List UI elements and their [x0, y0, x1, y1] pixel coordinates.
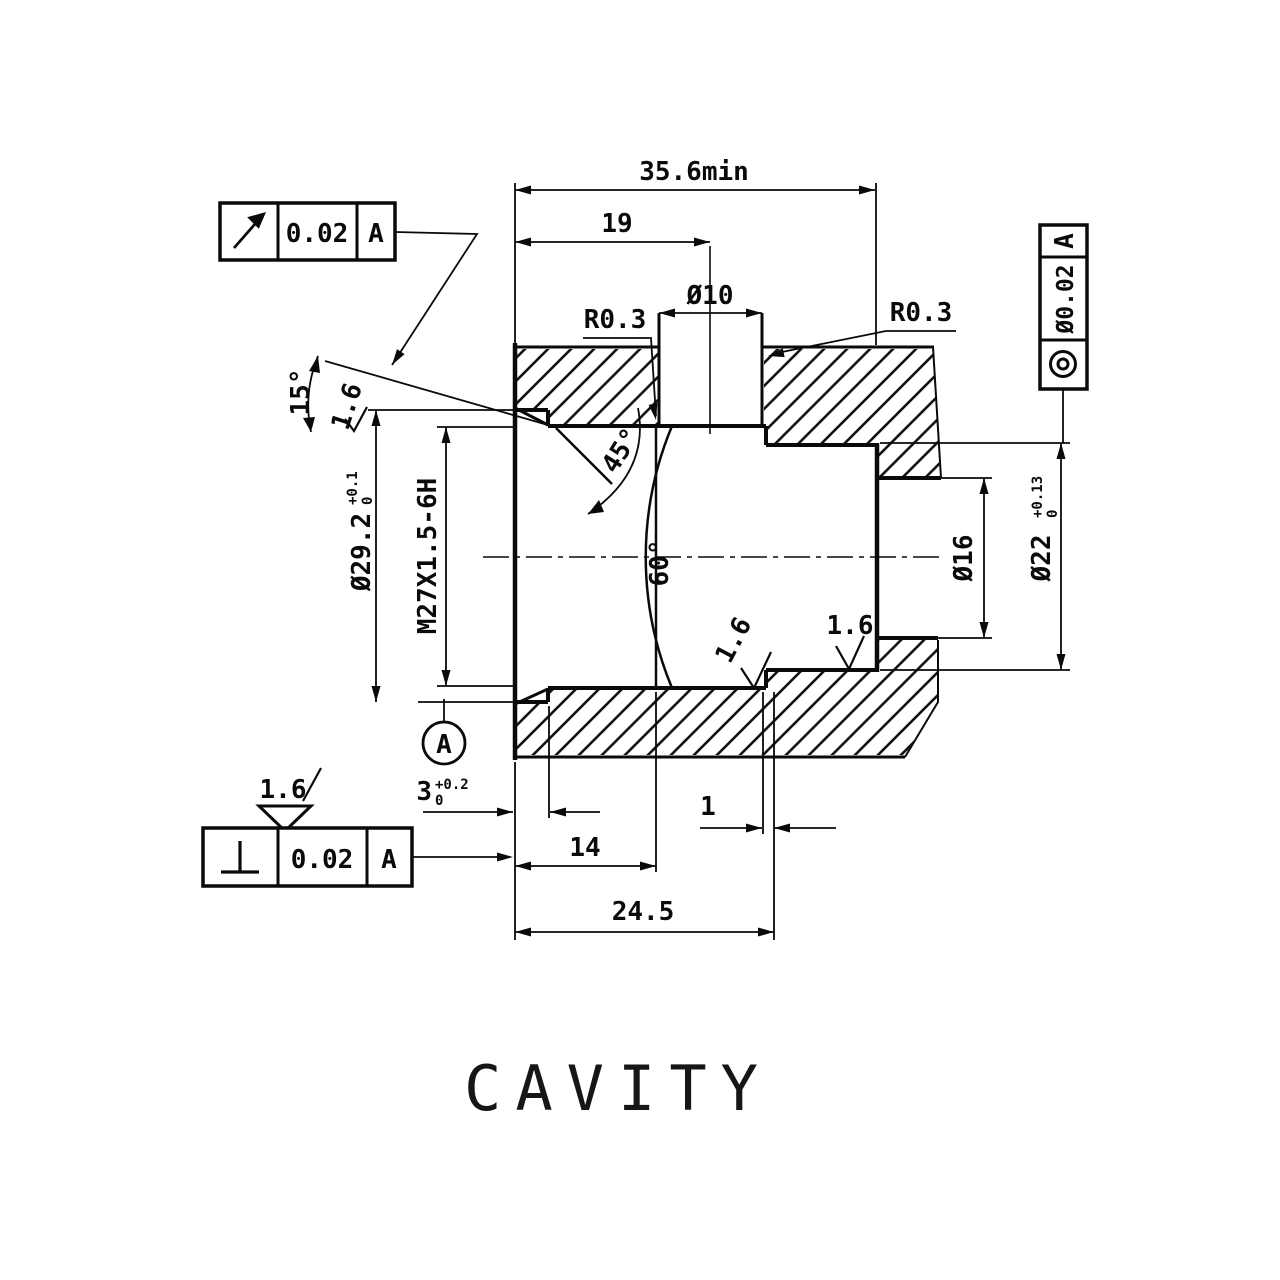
arrow: [746, 309, 762, 318]
dim-counterbore-depth-tol-up: +0.2: [435, 777, 469, 793]
arrow: [550, 808, 566, 817]
perpendicularity-frame: 0.02 A: [203, 828, 412, 886]
arrow: [372, 410, 381, 426]
dim-counterbore-dia-tol-up: +0.1: [345, 471, 361, 505]
arrow: [980, 478, 989, 494]
datum-label: A: [436, 730, 452, 760]
engineering-drawing-canvas: 35.6min 19 Ø10 R0.3 R0.3 15° Ø29.2 +0.1 …: [0, 0, 1280, 1280]
arrow: [588, 500, 604, 514]
arrow: [774, 824, 790, 833]
dim-land-width: 1: [700, 792, 716, 822]
dim-cross-hole: Ø10: [686, 281, 734, 311]
arrow: [497, 853, 513, 862]
arrow: [1057, 443, 1066, 459]
arrow: [372, 686, 381, 702]
dim-chamfer-angle: 45°: [596, 423, 646, 479]
leader-runout-fcf: [392, 232, 477, 365]
hatch-top-left: [517, 349, 659, 424]
arrow: [640, 862, 656, 871]
dim-entry-angle: 15°: [286, 369, 316, 416]
dim-hole-position: 19: [601, 209, 632, 239]
dimension-text: 35.6min 19 Ø10 R0.3 R0.3 15° Ø29.2 +0.1 …: [286, 157, 1061, 927]
dim-thread-depth: 14: [569, 833, 600, 863]
datum-feature: A: [423, 722, 465, 764]
dim-bore-depth: 24.5: [612, 897, 675, 927]
dim-total-depth: 35.6min: [639, 157, 749, 187]
runout-tolerance: 0.02: [286, 219, 349, 249]
arrow: [497, 808, 513, 817]
arrow: [758, 928, 774, 937]
perpendicularity-tolerance: 0.02: [291, 845, 354, 875]
dim-bore16: Ø16: [949, 535, 979, 583]
concentricity-frame: A Ø0.02: [1040, 225, 1087, 389]
concentricity-tolerance: Ø0.02: [1053, 264, 1079, 334]
sf-cone-label: 1.6: [710, 612, 759, 668]
dim-radius-left: R0.3: [584, 305, 647, 335]
dim-bore22-tol-up: +0.13: [1030, 476, 1046, 518]
sf-entry-label: 1.6: [326, 380, 369, 434]
arrow: [303, 417, 315, 432]
arrow: [659, 309, 675, 318]
hatch-top-right: [764, 349, 940, 478]
dim-counterbore-depth: 3: [416, 777, 432, 807]
arrow: [515, 186, 531, 195]
arrow: [515, 238, 531, 247]
arrow: [392, 349, 405, 365]
arrow: [694, 238, 710, 247]
arrow: [515, 928, 531, 937]
cavity-section-drawing: 35.6min 19 Ø10 R0.3 R0.3 15° Ø29.2 +0.1 …: [0, 0, 1280, 1280]
concentricity-datum-ref: A: [1050, 233, 1080, 249]
sf-bore-label: 1.6: [827, 611, 874, 641]
runout-frame: 0.02 A: [220, 203, 395, 260]
arrow: [515, 862, 531, 871]
sf-general-label: 1.6: [260, 775, 307, 805]
arrow: [980, 622, 989, 638]
dim-radius-right: R0.3: [890, 298, 953, 328]
dim-counterbore-depth-tol-low: 0: [435, 793, 443, 809]
arrow: [442, 427, 451, 443]
arrow: [859, 186, 875, 195]
dim-thread-spec: M27X1.5-6H: [413, 478, 443, 635]
dim-bore22-tol-low: 0: [1045, 510, 1061, 518]
dim-counterbore-dia-tol-low: 0: [360, 497, 376, 505]
dim-counterbore-dia: Ø29.2: [347, 513, 377, 592]
runout-datum-ref: A: [368, 219, 384, 249]
dim-cone-angle: 60°: [645, 540, 675, 587]
dim-bore22: Ø22: [1027, 535, 1057, 583]
arrow: [442, 670, 451, 686]
surface-finish-marks: 1.6 1.6 1.6 1.6: [259, 380, 873, 831]
arrow: [746, 824, 762, 833]
arrow: [1057, 654, 1066, 670]
perpendicularity-datum-ref: A: [381, 845, 397, 875]
drawing-title: CAVITY: [464, 1052, 772, 1125]
